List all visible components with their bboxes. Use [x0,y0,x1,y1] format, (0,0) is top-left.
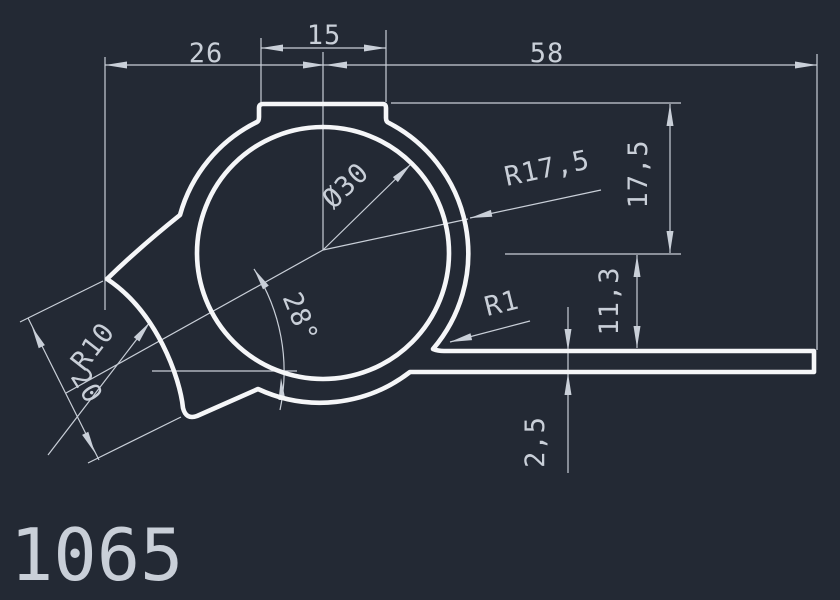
arrow-15-left [261,45,283,52]
arrow-2-5-bottom [565,373,572,395]
arrow-r10 [134,322,150,342]
cad-drawing-canvas: 26 15 58 17,5 11,3 2,5 20 28° R17,5 Ø30 … [0,0,840,600]
dim-r1-label: R1 [481,285,522,323]
arrow-15-right [364,45,386,52]
arrow-11-3-top [634,255,641,277]
dim-r10-label: R10 [65,317,121,377]
arrow-28-top [254,269,269,289]
profile-outline [107,104,814,417]
arrow-17-5-top [667,104,674,126]
arrow-17-5-bottom [667,231,674,253]
arrow-20-upper [32,327,45,348]
dim-26-label: 26 [189,38,224,69]
arrow-58-left [325,62,347,69]
extension-line-claw-upper [20,281,103,322]
part-number-label: 1065 [10,513,183,597]
arrow-20-lower [82,432,95,453]
dimension-labels: 26 15 58 17,5 11,3 2,5 20 28° R17,5 Ø30 … [64,20,654,468]
arrow-11-3-bottom [634,326,641,348]
arrow-26-right [303,62,325,69]
arrow-58-right [795,62,817,69]
dim-17-5-label: 17,5 [623,139,654,208]
arrow-dia30 [393,164,411,182]
arrow-r17-5 [470,210,492,218]
dim-15-label: 15 [307,20,342,51]
dim-r17-5-label: R17,5 [502,145,593,193]
dimension-arrowheads [32,45,817,454]
extension-line-claw-lower [88,417,181,463]
arrow-26-left [105,62,127,69]
profile-drawing: 26 15 58 17,5 11,3 2,5 20 28° R17,5 Ø30 … [0,0,840,600]
dim-58-label: 58 [530,38,565,69]
arrow-r1 [450,333,472,342]
arrow-2-5-top [565,329,572,351]
profile-geometry [107,104,814,417]
dim-11-3-label: 11,3 [594,266,625,335]
dim-2-5-label: 2,5 [520,416,551,468]
dim-28-label: 28° [276,288,324,348]
dim-dia30-label: Ø30 [317,157,376,215]
